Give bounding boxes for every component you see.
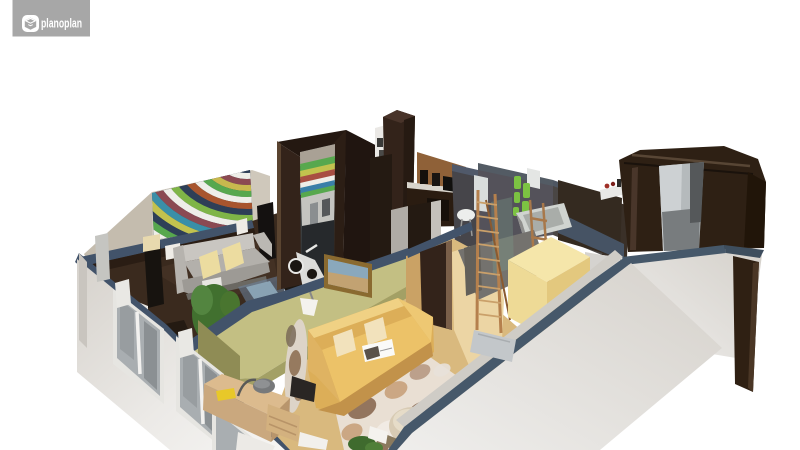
svg-text:planoplan: planoplan [41,17,82,31]
